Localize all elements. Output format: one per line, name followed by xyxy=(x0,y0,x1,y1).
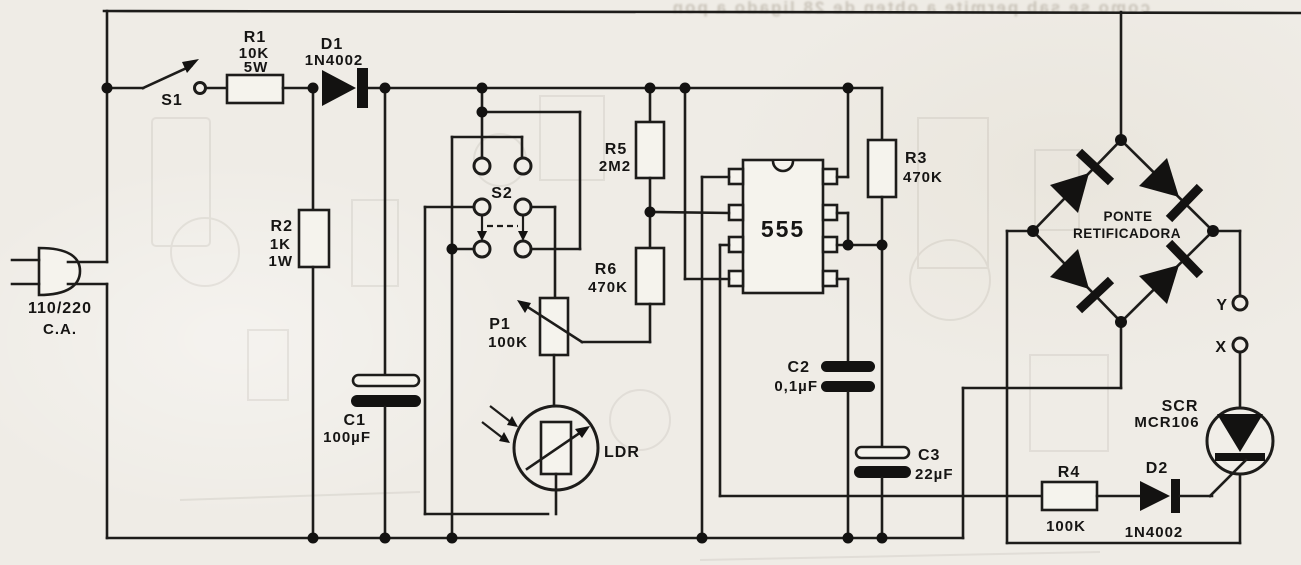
label-r6-value: 470K xyxy=(588,279,628,296)
label-r1: R1 xyxy=(244,29,266,46)
capacitor-c1: C1 100µF xyxy=(323,88,421,538)
label-r6: R6 xyxy=(595,261,617,278)
resistor-r5: R5 2M2 xyxy=(599,88,664,248)
resistor-r2: R2 1K 1W xyxy=(269,88,330,538)
label-terminal-y: Y xyxy=(1216,297,1228,314)
label-r3: R3 xyxy=(905,150,927,167)
label-ldr: LDR xyxy=(604,444,640,461)
label-c2-value: 0,1µF xyxy=(774,378,818,395)
label-c3-value: 22µF xyxy=(915,466,954,483)
label-terminal-x: X xyxy=(1215,339,1227,356)
bottom-rail xyxy=(107,322,1121,538)
label-c1: C1 xyxy=(344,412,366,429)
label-p1: P1 xyxy=(489,316,511,333)
schematic-page: como se sab permite a obten de 28 ligado… xyxy=(0,0,1301,565)
label-s1: S1 xyxy=(161,92,183,109)
label-r3-value: 470K xyxy=(903,169,943,186)
label-ac-type: C.A. xyxy=(43,321,77,338)
label-c2: C2 xyxy=(788,359,810,376)
ic-555: 555 xyxy=(650,88,1042,538)
label-d1: D1 xyxy=(321,36,343,53)
label-p1-value: 100K xyxy=(488,334,528,351)
label-d2-part: 1N4002 xyxy=(1125,524,1184,541)
label-c1-value: 100µF xyxy=(323,429,371,446)
label-ac-supply: 110/220 xyxy=(28,300,92,317)
label-r5: R5 xyxy=(605,141,627,158)
label-c3: C3 xyxy=(918,447,940,464)
label-scr: SCR xyxy=(1162,398,1199,415)
terminal-x: X xyxy=(1215,338,1247,408)
ac-plug: 110/220 C.A. xyxy=(12,248,107,338)
diode-d2: D2 1N4002 xyxy=(1125,460,1212,541)
label-r2-power: 1W xyxy=(269,253,294,270)
label-r2-value: 1K xyxy=(270,236,291,253)
label-s2: S2 xyxy=(491,185,513,202)
ldr: LDR xyxy=(482,406,640,514)
schematic-canvas: 110/220 C.A. S1 R1 10K 5W D1 1N4002 xyxy=(0,0,1301,565)
label-bridge-line2: RETIFICADORA xyxy=(1073,226,1181,241)
label-bridge-line1: PONTE xyxy=(1103,209,1152,224)
switch-s1: S1 xyxy=(143,59,227,109)
label-scr-part: MCR106 xyxy=(1134,414,1199,431)
label-r2: R2 xyxy=(271,218,293,235)
terminal-y: Y xyxy=(1216,296,1247,314)
label-d1-part: 1N4002 xyxy=(305,52,364,69)
scr-mcr106: SCR MCR106 xyxy=(1134,398,1273,496)
label-r1-power: 5W xyxy=(244,59,269,76)
label-r4: R4 xyxy=(1058,464,1080,481)
resistor-r6: R6 470K xyxy=(582,248,664,342)
label-d2: D2 xyxy=(1146,460,1168,477)
potentiometer-p1: P1 100K xyxy=(488,298,582,422)
resistor-r1: R1 10K 5W xyxy=(227,29,313,103)
capacitor-c3: C3 22µF xyxy=(854,447,954,538)
label-r4-value: 100K xyxy=(1046,518,1086,535)
label-ic-555: 555 xyxy=(761,216,805,242)
label-r5-value: 2M2 xyxy=(599,158,631,175)
